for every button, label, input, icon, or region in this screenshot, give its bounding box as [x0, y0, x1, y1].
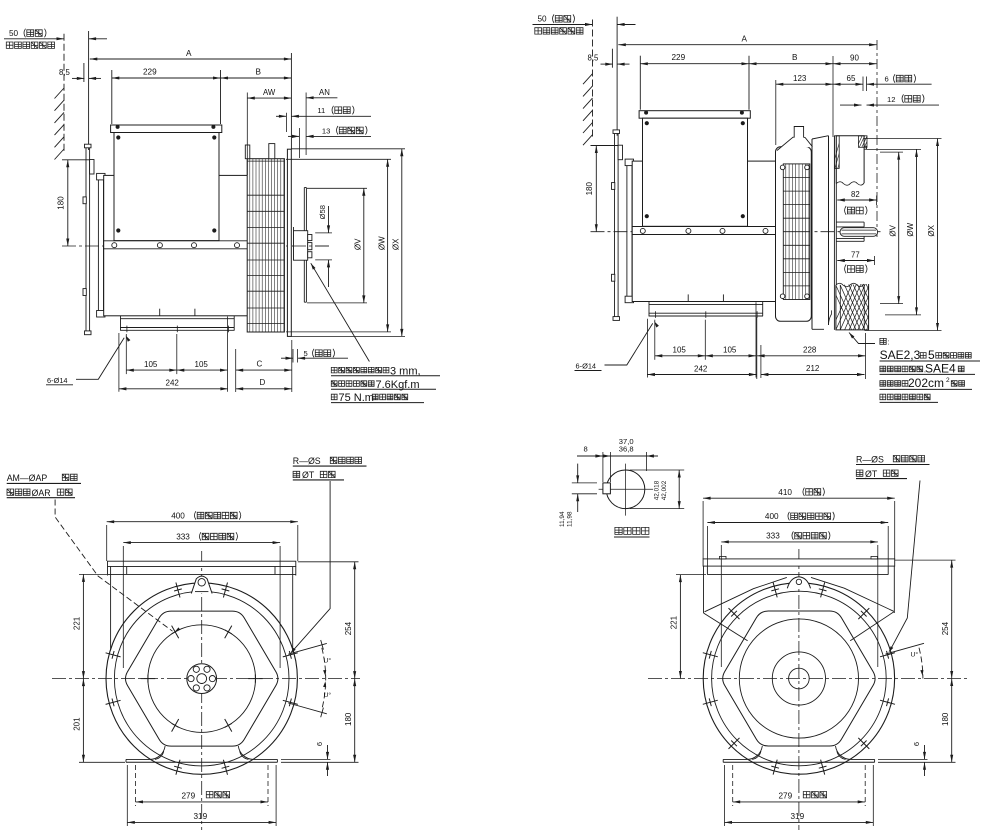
svg-text:400: 400: [171, 511, 185, 520]
svg-text:254: 254: [344, 621, 353, 635]
svg-text:8,5: 8,5: [59, 68, 71, 77]
svg-text:82: 82: [851, 190, 860, 199]
svg-text:6-Ø14: 6-Ø14: [576, 362, 597, 371]
svg-text:R—ØS: R—ØS: [293, 456, 321, 466]
svg-text:319: 319: [791, 812, 805, 821]
svg-text:ØW: ØW: [377, 236, 386, 250]
svg-text:180: 180: [941, 712, 950, 726]
svg-text::: :: [888, 338, 890, 347]
svg-text:U°: U°: [324, 657, 332, 665]
svg-text:AN: AN: [319, 88, 330, 97]
svg-text:36,8: 36,8: [619, 444, 634, 453]
svg-text:212: 212: [806, 364, 820, 373]
svg-text:12: 12: [887, 95, 895, 104]
svg-text:AM—ØAP: AM—ØAP: [7, 473, 48, 483]
svg-text:400: 400: [765, 512, 779, 521]
svg-text:AW: AW: [263, 88, 276, 97]
svg-text:6-Ø14: 6-Ø14: [47, 376, 68, 385]
svg-text:221: 221: [669, 615, 678, 629]
svg-text:U°: U°: [324, 691, 332, 699]
svg-text:11,94: 11,94: [559, 511, 566, 527]
svg-text:333: 333: [176, 532, 190, 541]
svg-text:50: 50: [9, 29, 19, 38]
svg-text:229: 229: [143, 68, 157, 77]
svg-text:105: 105: [144, 360, 158, 369]
svg-text:90: 90: [850, 53, 859, 62]
svg-text:B: B: [792, 53, 798, 62]
svg-text:11,98: 11,98: [566, 511, 573, 527]
svg-text:65: 65: [847, 74, 856, 83]
svg-text:242: 242: [694, 364, 708, 373]
svg-text:SAE4: SAE4: [925, 362, 956, 376]
svg-text:229: 229: [672, 53, 686, 62]
svg-text:SAE2,3: SAE2,3: [880, 348, 921, 362]
svg-text:6: 6: [315, 742, 324, 746]
svg-text:ØX: ØX: [392, 238, 401, 250]
svg-text:A: A: [186, 49, 192, 58]
svg-text:5: 5: [928, 348, 935, 362]
svg-text:42,018: 42,018: [654, 480, 661, 500]
svg-text:77: 77: [851, 251, 860, 260]
svg-text:5: 5: [304, 349, 308, 358]
svg-text:410: 410: [778, 488, 792, 497]
svg-text:8: 8: [584, 444, 588, 453]
svg-text:42,002: 42,002: [661, 480, 668, 500]
svg-text:180: 180: [585, 182, 594, 196]
svg-text:228: 228: [803, 345, 817, 354]
svg-text:B: B: [256, 68, 262, 77]
svg-text:Ø58: Ø58: [318, 205, 327, 219]
svg-text:279: 279: [182, 791, 196, 800]
svg-text:2: 2: [946, 377, 950, 384]
svg-text:ØX: ØX: [927, 224, 936, 236]
svg-text:221: 221: [72, 616, 81, 630]
svg-text:ØV: ØV: [353, 238, 362, 250]
svg-text:6: 6: [885, 75, 889, 84]
svg-text:279: 279: [779, 791, 793, 800]
svg-text:ØW: ØW: [906, 222, 915, 236]
svg-text:201: 201: [72, 717, 81, 731]
svg-text:8,5: 8,5: [588, 54, 600, 63]
svg-text:105: 105: [723, 346, 737, 355]
svg-text:U°: U°: [911, 651, 919, 659]
svg-text:105: 105: [195, 360, 209, 369]
svg-text:ØT: ØT: [302, 470, 315, 480]
svg-text:242: 242: [166, 379, 180, 388]
svg-text:202cm: 202cm: [908, 376, 944, 390]
svg-text:ØAR: ØAR: [32, 488, 51, 498]
svg-text:C: C: [257, 359, 263, 368]
svg-text:R—ØS: R—ØS: [856, 454, 884, 464]
svg-text:50: 50: [538, 15, 548, 24]
svg-text:ØT: ØT: [865, 469, 878, 479]
svg-text:180: 180: [56, 196, 65, 210]
svg-text:A: A: [742, 35, 748, 44]
svg-text:ØV: ØV: [888, 224, 897, 236]
svg-text:333: 333: [766, 532, 780, 541]
svg-text:6: 6: [912, 742, 921, 746]
svg-text:180: 180: [344, 712, 353, 726]
svg-text:319: 319: [194, 812, 208, 821]
svg-text:11: 11: [317, 106, 325, 115]
svg-text:123: 123: [793, 74, 807, 83]
svg-text:13: 13: [322, 126, 330, 135]
svg-text:D: D: [260, 378, 266, 387]
svg-text:254: 254: [941, 621, 950, 635]
svg-text:105: 105: [673, 346, 687, 355]
